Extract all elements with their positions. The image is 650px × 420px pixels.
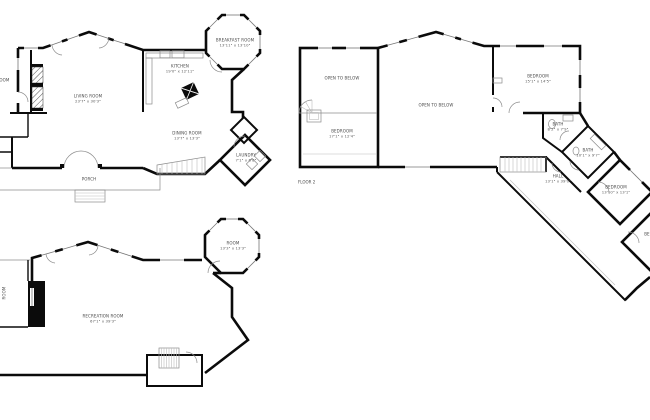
floor2-plan	[299, 32, 650, 300]
floor1-stairs	[157, 157, 205, 174]
room-label-dining-room: DINING ROOM13'7" x 13'3"	[172, 131, 201, 142]
room-label-bath-2: BATH10'1" x 9'7"	[576, 148, 600, 159]
room-label-bath-1: BATH8'2" x 7'9"	[547, 122, 568, 133]
room-label-bedroom-2: BEDROOM15'1" x 14'5"	[525, 74, 551, 85]
room-label-open-to-below-2: OPEN TO BELOW	[419, 102, 454, 107]
floor1-kitchen-fixtures	[146, 51, 203, 108]
floor2-walls	[300, 32, 650, 300]
floor2-spiral-stair	[299, 100, 321, 122]
room-label-living-room: LIVING ROOM23'7" x 30'3"	[74, 94, 102, 105]
room-label-hall: HALL13'1" x 39'0"	[545, 174, 571, 185]
floor2-windows	[318, 34, 642, 182]
lower-stairs	[159, 348, 197, 368]
room-label-kitchen: KITCHEN19'0" x 12'11"	[166, 64, 195, 75]
room-label-octagon-room: ROOM13'3" x 13'3"	[220, 241, 246, 252]
room-label-bedroom-1: BEDROOM17'1" x 12'4"	[329, 129, 355, 140]
room-label-breakfast-room: BREAKFAST ROOM13'11" x 13'10"	[216, 38, 254, 49]
floor-2-sheet-label: FLOOR 2	[298, 180, 315, 185]
floorplan-drawing	[0, 0, 650, 420]
room-label-porch: PORCH	[82, 176, 96, 181]
room-label-open-to-below-1: OPEN TO BELOW	[325, 75, 360, 80]
floor1-porch	[0, 168, 160, 202]
floor2-stairs	[500, 157, 546, 172]
room-label-laundry: LAUNDRY7'1" x 6'8"	[235, 153, 256, 164]
floorplan-canvas: LIVING ROOM23'7" x 30'3" KITCHEN19'0" x …	[0, 0, 650, 420]
room-label-bedroom-3: BEDROOM13'10" x 13'1"	[602, 185, 631, 196]
room-label-cutoff-room: ROOM	[0, 77, 9, 82]
floor1-chimney	[31, 64, 43, 111]
lower-windows	[32, 219, 259, 306]
room-label-recreation-room: RECREATION ROOM67'1" x 39'3"	[83, 314, 124, 325]
room-label-cutoff-left-room: ROOM	[1, 287, 6, 300]
room-label-bedroom-4-cutoff: BEDROOM11'1"	[644, 232, 650, 243]
